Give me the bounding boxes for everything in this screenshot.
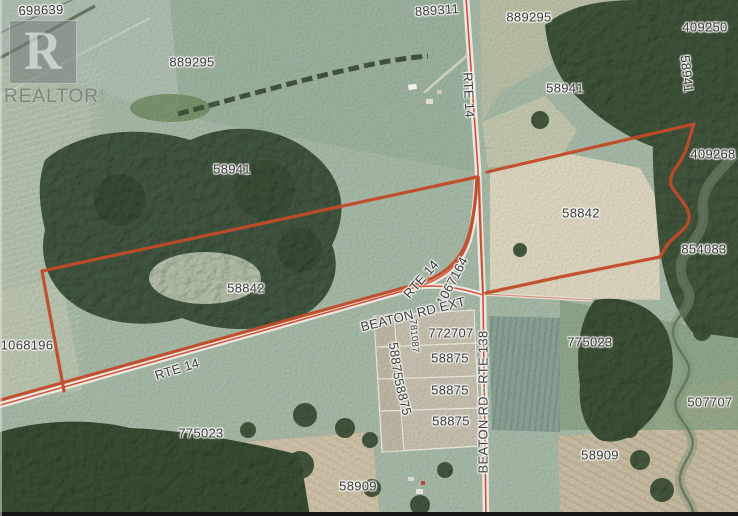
realtor-logo: R [9, 20, 77, 84]
realtor-logo-letter: R [24, 25, 62, 80]
registered-trademark-symbol: ® [99, 88, 106, 97]
satellite-map [0, 0, 738, 516]
subdivision-lots [374, 310, 480, 452]
realtor-wordmark: REALTOR® [4, 86, 90, 108]
parcel-map-image: 6986398892958893118892954092505894158941… [0, 0, 738, 516]
image-bottom-border [0, 512, 738, 516]
image-left-edge [0, 0, 2, 516]
realtor-watermark: R REALTOR® [4, 20, 90, 108]
